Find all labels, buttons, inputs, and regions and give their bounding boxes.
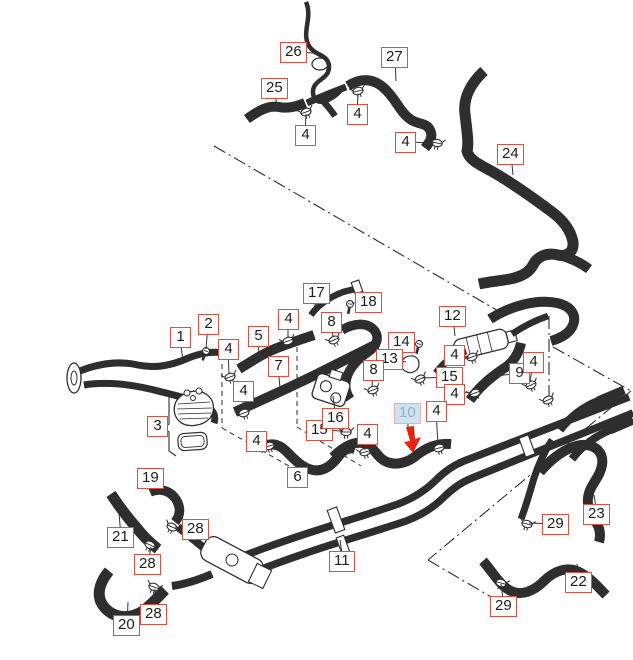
callout-18[interactable]: 18 bbox=[355, 292, 382, 313]
callout-8[interactable]: 8 bbox=[363, 360, 384, 381]
callout-25[interactable]: 25 bbox=[261, 78, 288, 99]
callout-17[interactable]: 17 bbox=[303, 283, 330, 304]
callout-21[interactable]: 21 bbox=[107, 527, 134, 548]
callout-7[interactable]: 7 bbox=[268, 356, 289, 377]
callout-4[interactable]: 4 bbox=[347, 104, 368, 125]
callout-4[interactable]: 4 bbox=[523, 352, 544, 373]
callout-4[interactable]: 4 bbox=[233, 381, 254, 402]
callout-4[interactable]: 4 bbox=[444, 384, 465, 405]
callout-29[interactable]: 29 bbox=[542, 514, 569, 535]
callout-4[interactable]: 4 bbox=[218, 339, 239, 360]
callout-28[interactable]: 28 bbox=[140, 604, 167, 625]
parts-diagram-canvas: 2625427442412454171887434151661214138415… bbox=[0, 0, 633, 660]
callout-1[interactable]: 1 bbox=[170, 327, 191, 348]
callout-2[interactable]: 2 bbox=[198, 314, 219, 335]
callout-16[interactable]: 16 bbox=[322, 408, 349, 429]
callout-4[interactable]: 4 bbox=[246, 431, 267, 452]
callout-29[interactable]: 29 bbox=[490, 596, 517, 617]
callout-layer: 2625427442412454171887434151661214138415… bbox=[0, 0, 633, 660]
callout-8[interactable]: 8 bbox=[321, 312, 342, 333]
callout-10-highlighted[interactable]: 10 bbox=[394, 403, 421, 424]
callout-4[interactable]: 4 bbox=[426, 401, 447, 422]
callout-4[interactable]: 4 bbox=[444, 345, 465, 366]
callout-4[interactable]: 4 bbox=[395, 132, 416, 153]
callout-23[interactable]: 23 bbox=[583, 504, 610, 525]
callout-5[interactable]: 5 bbox=[248, 326, 269, 347]
callout-24[interactable]: 24 bbox=[497, 144, 524, 165]
callout-22[interactable]: 22 bbox=[565, 572, 592, 593]
callout-3[interactable]: 3 bbox=[147, 416, 168, 437]
callout-12[interactable]: 12 bbox=[439, 306, 466, 327]
callout-4[interactable]: 4 bbox=[278, 309, 299, 330]
callout-20[interactable]: 20 bbox=[113, 615, 140, 636]
callout-11[interactable]: 11 bbox=[329, 551, 355, 572]
callout-26[interactable]: 26 bbox=[280, 42, 307, 63]
callout-4[interactable]: 4 bbox=[295, 125, 316, 146]
callout-19[interactable]: 19 bbox=[137, 468, 164, 489]
callout-6[interactable]: 6 bbox=[287, 467, 308, 488]
callout-28[interactable]: 28 bbox=[182, 519, 209, 540]
callout-4[interactable]: 4 bbox=[357, 424, 378, 445]
callout-27[interactable]: 27 bbox=[381, 47, 408, 68]
callout-28[interactable]: 28 bbox=[134, 554, 161, 575]
